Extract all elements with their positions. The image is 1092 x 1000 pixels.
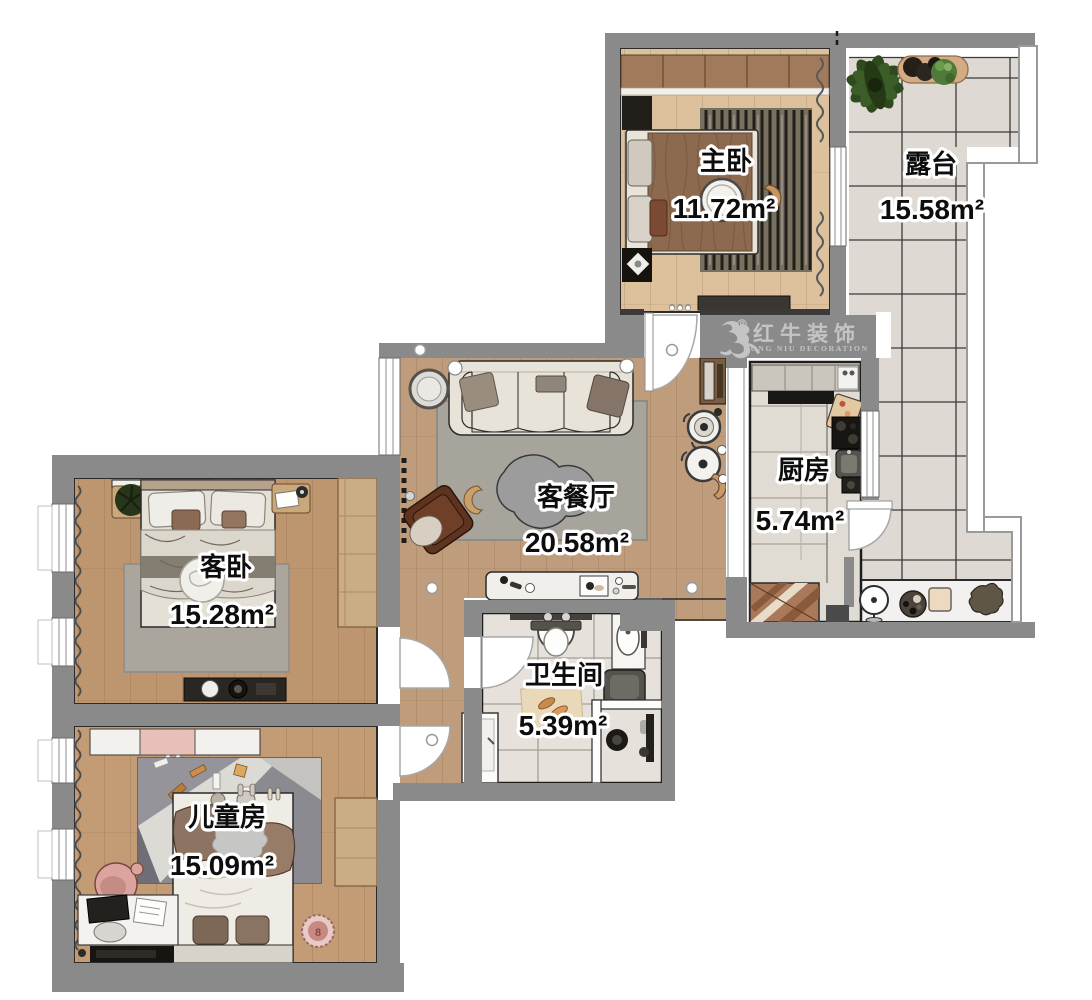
svg-text:11.72m²: 11.72m² <box>673 193 776 224</box>
svg-text:5.39m²: 5.39m² <box>519 710 608 741</box>
svg-text:厨房: 厨房 <box>778 455 830 485</box>
svg-text:主卧: 主卧 <box>700 146 752 176</box>
svg-text:红牛装饰: 红牛装饰 <box>753 322 861 346</box>
svg-text:15.58m²: 15.58m² <box>880 194 984 225</box>
svg-text:客餐厅: 客餐厅 <box>537 482 615 512</box>
svg-text:露台: 露台 <box>905 149 957 179</box>
svg-text:20.58m²: 20.58m² <box>525 527 629 558</box>
svg-text:15.28m²: 15.28m² <box>170 599 274 630</box>
svg-text:HONG NIU DECORATION: HONG NIU DECORATION <box>743 344 869 353</box>
svg-text:儿童房: 儿童房 <box>188 802 266 832</box>
svg-text:15.09m²: 15.09m² <box>170 850 274 881</box>
svg-text:8: 8 <box>315 927 321 939</box>
svg-text:卫生间: 卫生间 <box>525 660 603 690</box>
svg-text:客卧: 客卧 <box>200 552 252 582</box>
svg-text:5.74m²: 5.74m² <box>756 505 845 536</box>
